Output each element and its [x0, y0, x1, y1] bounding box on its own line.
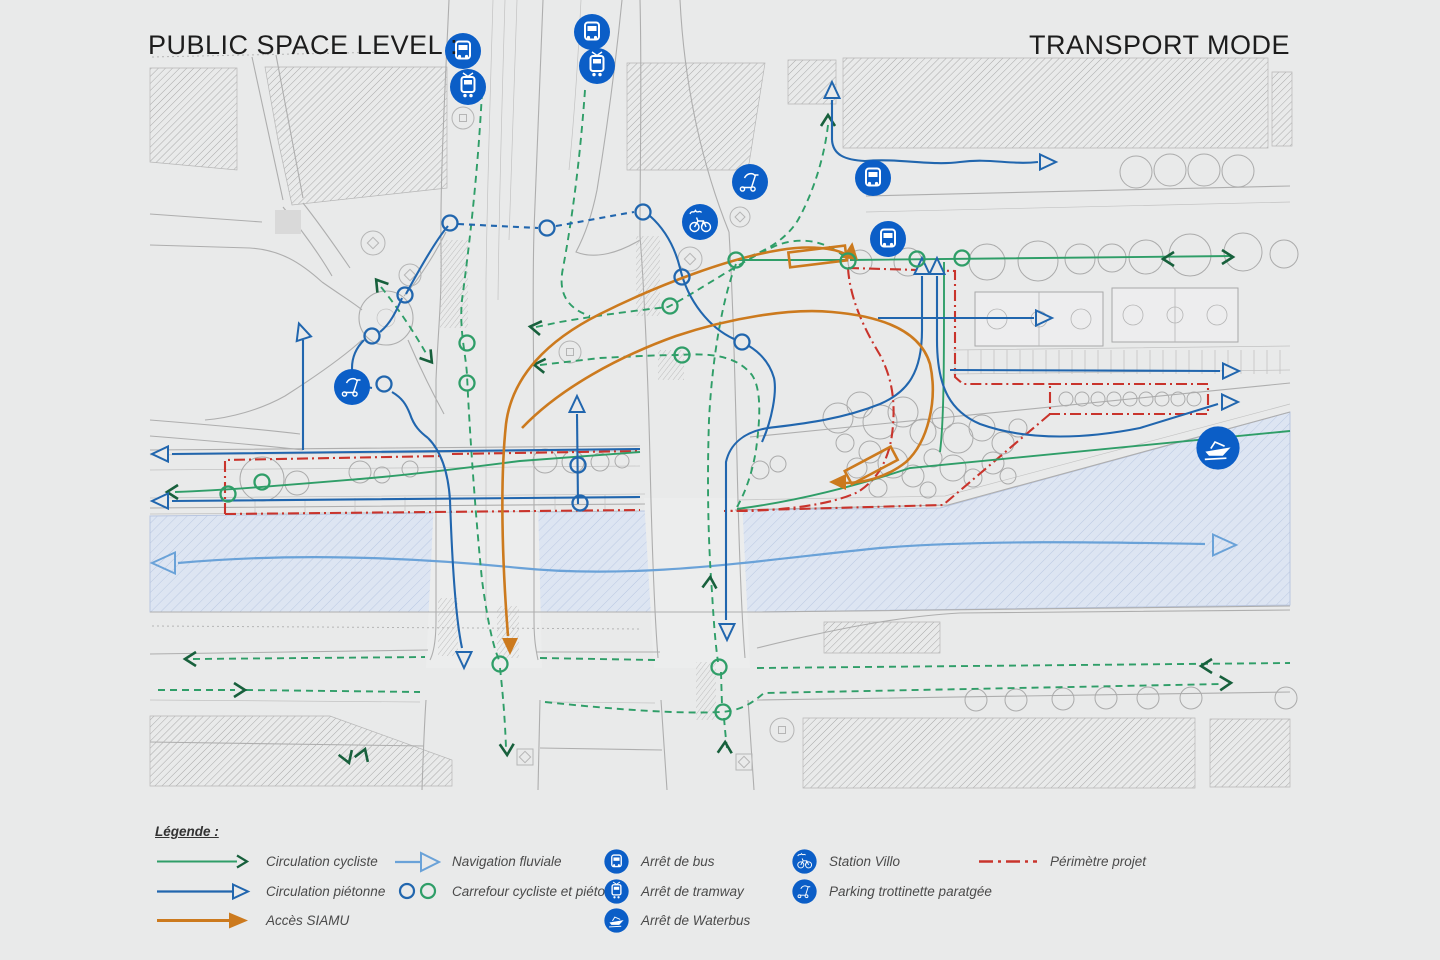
page-title: PUBLIC SPACE LEVEL :: [148, 30, 458, 61]
legend-item-villo: Station Villo: [791, 852, 992, 871]
villo-icon: [791, 848, 818, 875]
legend-label: Circulation cycliste: [266, 854, 378, 869]
legend-label: Arrêt de bus: [641, 854, 715, 869]
legend-item-bus: Arrêt de bus: [603, 852, 750, 871]
bus-icon: [603, 848, 630, 875]
legend-label: Accès SIAMU: [266, 913, 349, 928]
siamu-route-icon: [155, 911, 255, 930]
pedestrian-route-icon: [155, 882, 255, 901]
page-title-right: TRANSPORT MODE: [1029, 30, 1290, 61]
legend-item-siamu: Accès SIAMU: [155, 911, 385, 930]
tram-icon: [603, 878, 630, 905]
legend-label: Navigation fluviale: [452, 854, 562, 869]
waterbus-icon: [603, 907, 630, 934]
bus-stop-marker: [870, 221, 906, 257]
legend: Légende : Circulation cycliste Circulati…: [155, 824, 1305, 852]
legend-item-waterbus: Arrêt de Waterbus: [603, 911, 750, 930]
legend-item-navigation: Navigation fluviale: [395, 852, 613, 871]
tram-stop-marker: [579, 48, 615, 84]
tram-stop-marker: [450, 69, 486, 105]
legend-heading: Légende :: [155, 824, 1305, 839]
legend-item-scooter: Parking trottinette paratgée: [791, 882, 992, 901]
legend-label: Parking trottinette paratgée: [829, 884, 992, 899]
bus-stop-marker: [855, 160, 891, 196]
bridge-2-deck: [644, 498, 750, 668]
cyclist-route-icon: [155, 852, 255, 871]
legend-label: Circulation piétonne: [266, 884, 385, 899]
plan-page: PUBLIC SPACE LEVEL : TRANSPORT MODE Lége…: [0, 0, 1440, 960]
legend-item-perimeter: Périmètre projet: [977, 852, 1146, 871]
legend-label: Périmètre projet: [1050, 854, 1146, 869]
scooter-parking-marker: [334, 369, 370, 405]
bus-stop-marker: [574, 14, 610, 50]
navigation-route-icon: [395, 851, 441, 873]
station-villo-marker: [682, 204, 718, 240]
perimeter-line-icon: [977, 852, 1039, 871]
legend-label: Arrêt de tramway: [641, 884, 744, 899]
legend-item-pedestrian: Circulation piétonne: [155, 882, 385, 901]
legend-label: Station Villo: [829, 854, 900, 869]
legend-item-tram: Arrêt de tramway: [603, 882, 750, 901]
legend-item-crossing: Carrefour cycliste et piéton: [395, 882, 613, 901]
legend-label: Arrêt de Waterbus: [641, 913, 750, 928]
transport-mode-plan: [0, 0, 1440, 960]
crossing-rings-icon: [395, 880, 441, 902]
waterbus-stop-marker: [1196, 426, 1239, 469]
scooter-parking-marker: [732, 164, 768, 200]
legend-item-cyclist: Circulation cycliste: [155, 852, 385, 871]
legend-label: Carrefour cycliste et piéton: [452, 884, 613, 899]
scooter-icon: [791, 878, 818, 905]
